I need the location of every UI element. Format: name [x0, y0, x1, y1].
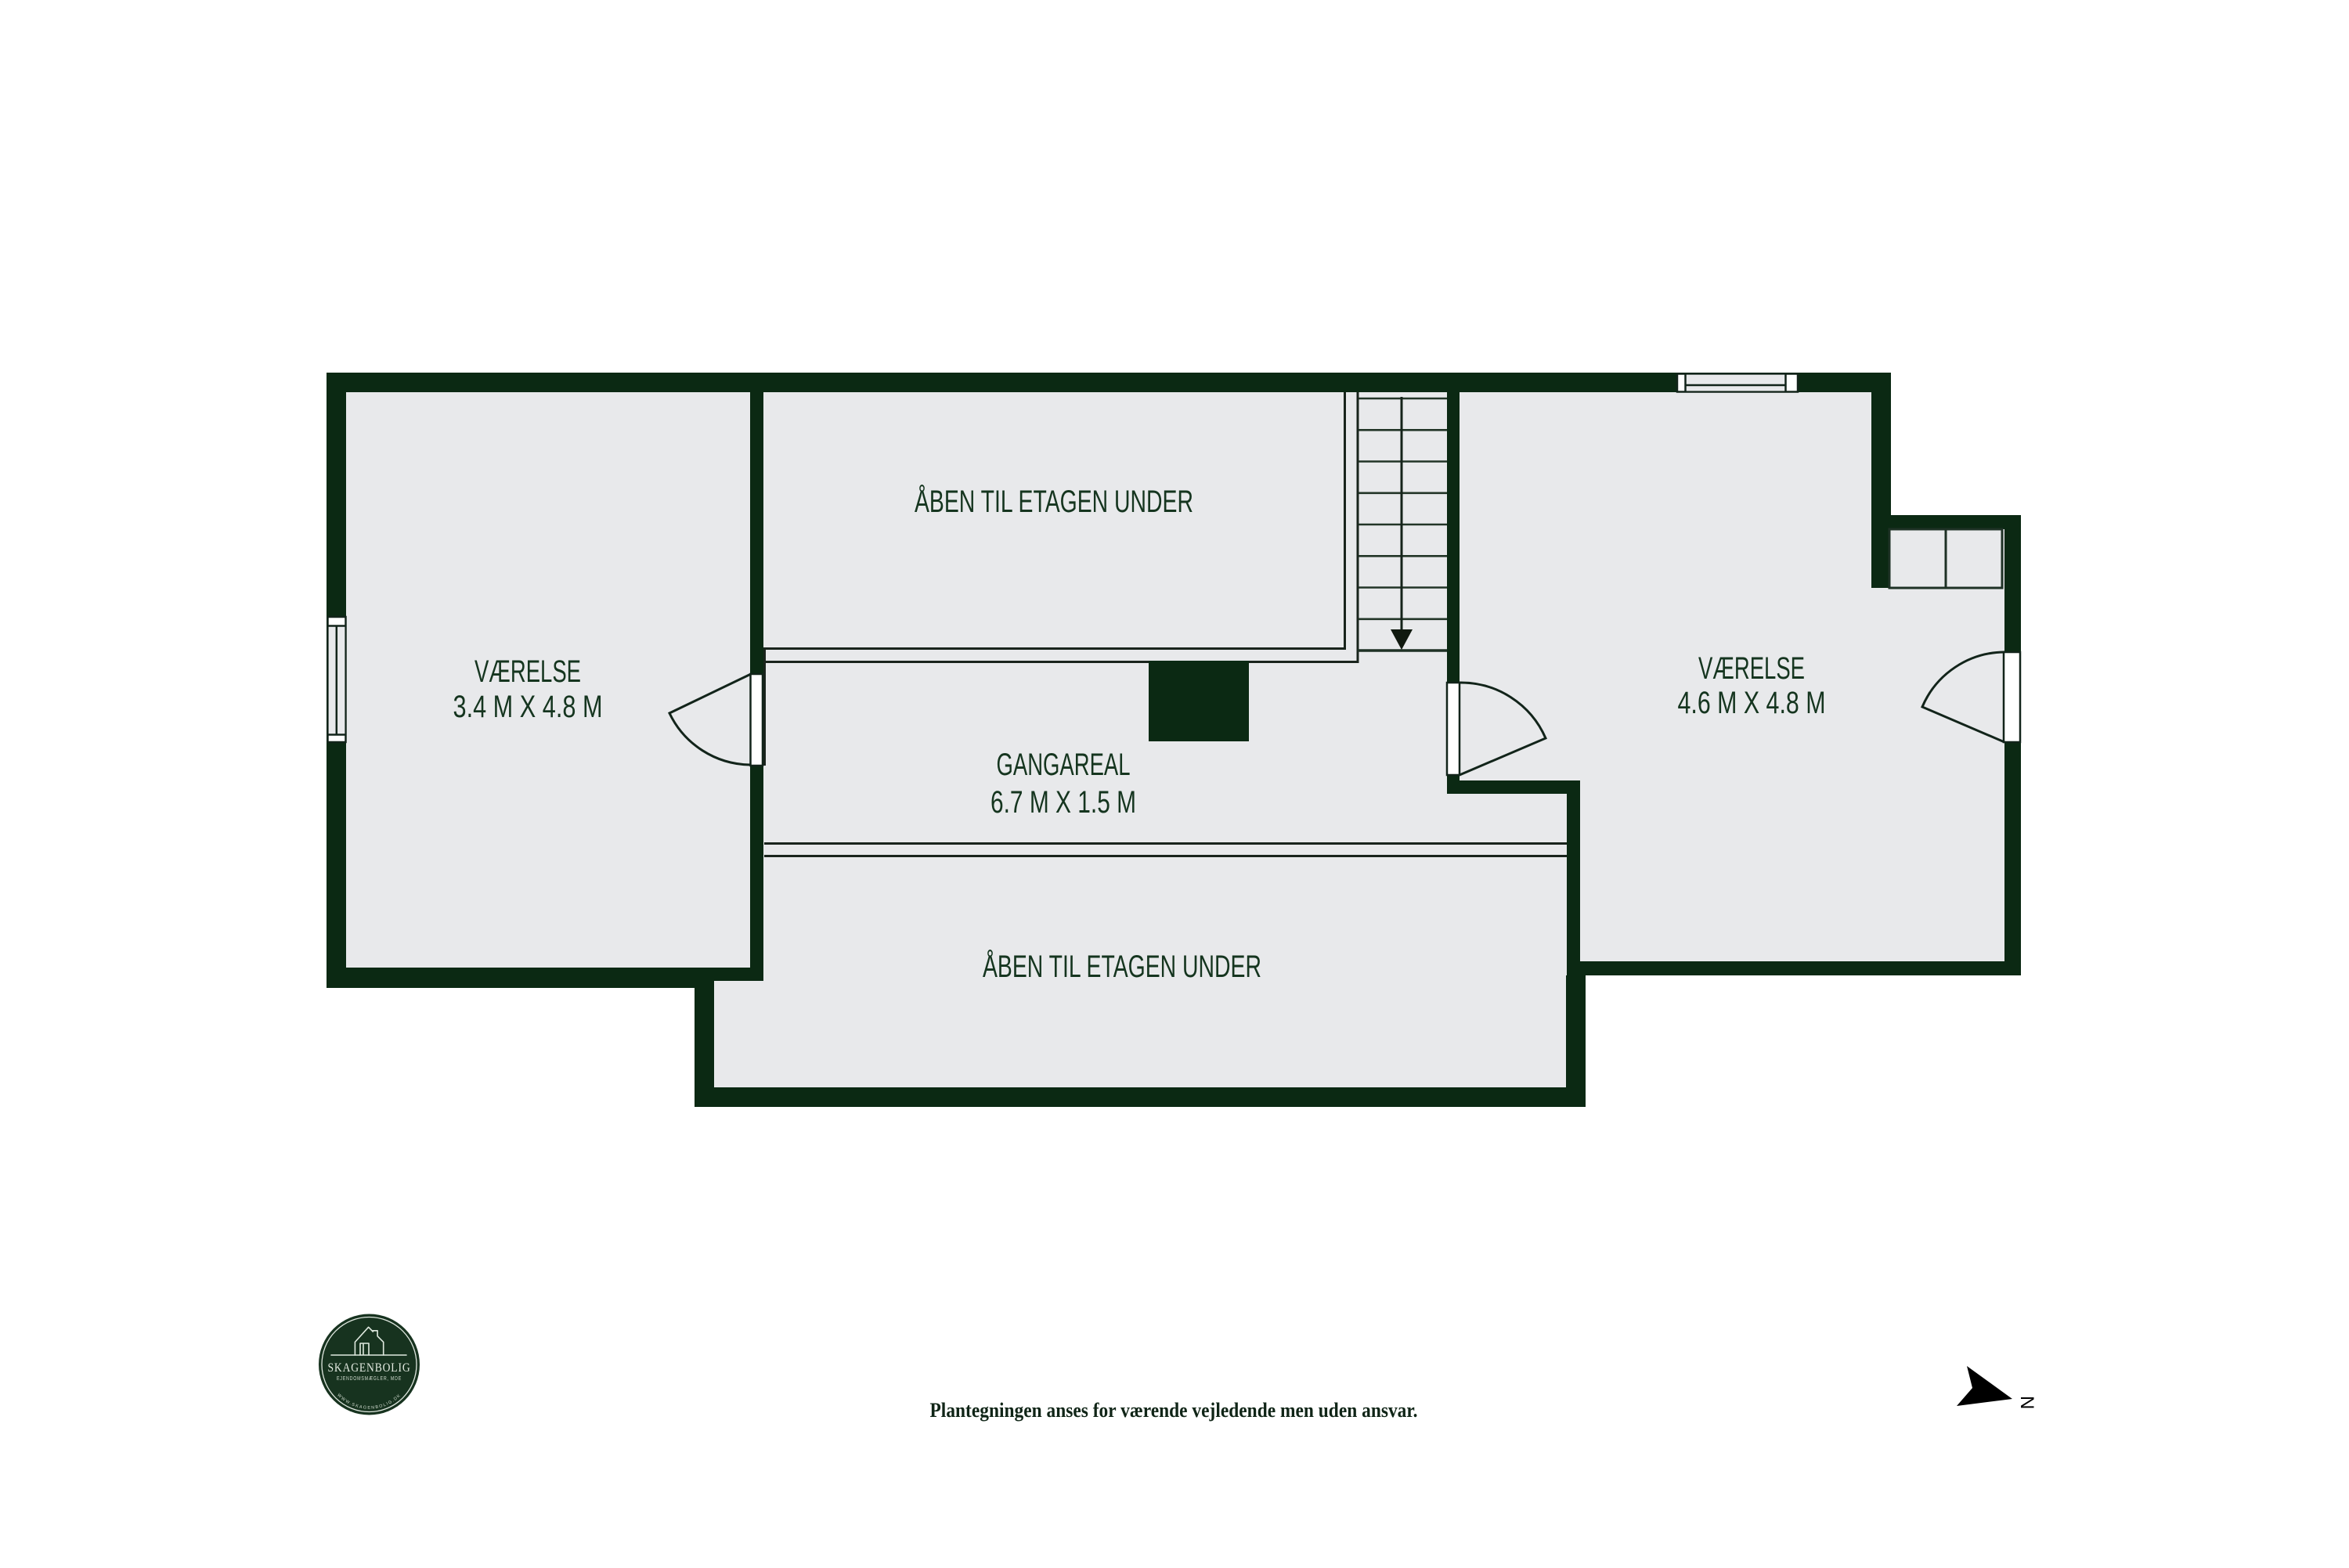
svg-text:VÆRELSE: VÆRELSE	[474, 654, 581, 689]
svg-text:ÅBEN TIL ETAGEN UNDER: ÅBEN TIL ETAGEN UNDER	[983, 949, 1261, 984]
svg-text:Plantegningen anses for værend: Plantegningen anses for værende vejleden…	[930, 1399, 1418, 1422]
svg-text:VÆRELSE: VÆRELSE	[1698, 651, 1805, 686]
svg-text:GANGAREAL: GANGAREAL	[997, 748, 1131, 782]
svg-text:SKAGENBOLIG: SKAGENBOLIG	[328, 1361, 411, 1375]
svg-text:ÅBEN TIL ETAGEN UNDER: ÅBEN TIL ETAGEN UNDER	[915, 484, 1193, 519]
svg-text:4.6 M X 4.8 M: 4.6 M X 4.8 M	[1678, 686, 1826, 720]
svg-text:3.4 M X 4.8 M: 3.4 M X 4.8 M	[453, 690, 603, 724]
svg-text:N: N	[2016, 1396, 2037, 1409]
svg-text:EJENDOMSMÆGLER, MDE: EJENDOMSMÆGLER, MDE	[337, 1376, 402, 1382]
svg-text:6.7 M X 1.5 M: 6.7 M X 1.5 M	[990, 785, 1136, 820]
